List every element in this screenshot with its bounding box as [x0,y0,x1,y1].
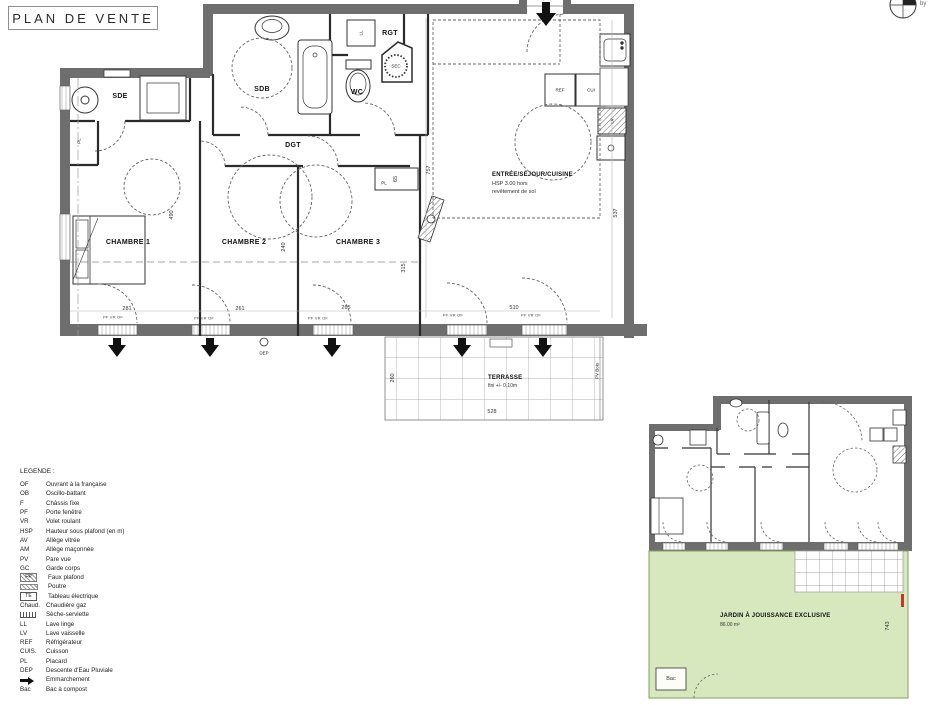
dim-sejour-width: 510 [509,305,518,311]
window-label-4: PF VR OF [443,314,463,319]
legend-key: LL [20,621,46,628]
legend-label: Lave vaisselle [46,630,85,637]
legend-label: Ouvrant à la française [46,481,107,488]
legend-item: AM Allège maçonnée [20,545,195,554]
legend: LEGENDE : OF Ouvrant à la française OB O… [20,468,195,694]
legend-item: OB Oscillo-battant [20,489,195,498]
legend-item: Emmarchement [20,675,195,684]
legend-key: PF [20,509,46,516]
room-label-sdb: SDB [254,86,270,94]
fixture-label-pl2: PL [76,138,81,144]
legend-label: Volet roulant [46,518,80,525]
legend-item: FP Faux plafond [20,573,195,582]
legend-item: HSP Hauteur sous plafond (en m) [20,526,195,535]
window-label-1: PF VR OF [103,316,123,321]
room-label-rgt: RGT [382,30,398,38]
dim-chambre1-width: 281 [122,306,131,312]
window-label-5: PF VR OF [521,314,541,319]
legend-key: TE [20,592,37,601]
legend-label: Faux plafond [48,574,84,581]
page-title: PLAN DE VENTE [12,11,154,26]
room-label-dgt: DGT [285,142,301,150]
legend-label: Châssis fixe [46,500,79,507]
dim-sejour-height: 537 [613,208,619,217]
room-label-chambre3: CHAMBRE 3 [336,239,380,247]
dep-label: DEP [259,350,268,355]
room-label-sde: SDE [112,93,127,101]
dim-chambre3-height: 315 [401,263,407,272]
fixture-label-ref: REF [556,87,565,92]
window-label-3: PF VR OF [308,317,328,322]
window-label-2: PF VR OF [194,317,214,322]
legend-key: HSP [20,528,46,535]
legend-item: PF Porte fenêtre [20,508,195,517]
sejour-note-1: HSP 3.00 hors [492,181,528,187]
legend-item: Chaud. Chaudière gaz [20,601,195,610]
legend-key [20,612,36,618]
compass-caption: by [920,1,926,8]
legend-key: CUIS. [20,648,46,655]
dim-chambre3-width: 265 [341,305,350,311]
legend-item: LV Lave vaisselle [20,629,195,638]
fixture-label-ll: LL [358,30,363,35]
legend-label: Allège vitrée [46,537,80,544]
room-label-chambre2: CHAMBRE 2 [222,239,266,247]
legend-label: Descente d'Eau Pluviale [46,667,113,674]
fixture-label-lv: LV [609,118,614,123]
legend-label: Garde corps [46,565,80,572]
sejour-note-2: revêtement de sol [492,189,536,195]
dim-terrasse-depth: 260 [390,373,396,382]
legend-key: OF [20,481,46,488]
legend-item: Bac Bac à compost [20,685,195,694]
fixture-label-sec: SEC [391,63,400,68]
bac-label: Bac [666,676,675,682]
dim-jardin-height: 743 [885,621,891,630]
legend-item: TE Tableau électrique [20,592,195,601]
legend-item: GC Garde corps [20,564,195,573]
dim-chambre2-height: 240 [281,242,287,251]
legend-key: AM [20,546,46,553]
dim-terrasse-width: 528 [487,409,496,415]
legend-item: LL Lave linge [20,619,195,628]
legend-label: Cuisson [46,648,68,655]
legend-label: Lave linge [46,621,74,628]
floor-plan-sheet: PLAN DE VENTE by SDE SDB WC RGT DGT CHAM… [0,0,940,705]
legend-key: PV [20,556,46,563]
jardin-title: JARDIN À JOUISSANCE EXCLUSIVE [720,613,831,620]
legend-key: Bac [20,686,46,693]
dim-total-height: 757 [426,165,432,174]
dim-chambre1-height: 490 [169,210,175,219]
legend-label: Tableau électrique [48,593,98,600]
fixture-label-cui: CUI [587,87,595,92]
legend-key: F [20,500,46,507]
legend-item: DEP Descente d'Eau Pluviale [20,666,195,675]
legend-item: VR Volet roulant [20,517,195,526]
legend-label: Hauteur sous plafond (en m) [46,528,124,535]
legend-label: Bac à compost [46,686,87,693]
legend-label: Placard [46,658,67,665]
title-box: PLAN DE VENTE [8,6,158,30]
legend-key: AV [20,537,46,544]
legend-item: Sèche-serviette [20,610,195,619]
legend-label: Allège maçonnée [46,546,94,553]
legend-key: VR [20,518,46,525]
legend-item: PL Placard [20,657,195,666]
legend-list: OF Ouvrant à la française OB Oscillo-bat… [20,480,195,694]
terrasse-note: fini +/- 0.10m [488,384,517,390]
legend-item: PV Pare vue [20,554,195,563]
dim-closet-depth: 65 [393,176,399,182]
legend-key: OB [20,490,46,497]
legend-label: Porte fenêtre [46,509,82,516]
fixture-label-pl: PL [381,180,387,185]
legend-key: GC [20,565,46,572]
jardin-area: 86.00 m² [720,623,740,629]
legend-title: LEGENDE : [20,468,195,475]
legend-label: Oscillo-battant [46,490,86,497]
dim-chambre2-width: 261 [235,306,244,312]
legend-key: FP [20,573,37,582]
legend-label: Réfrigérateur [46,639,82,646]
room-label-sejour: ENTRÉE/SÉJOUR/CUISINE [492,172,573,179]
legend-item: F Châssis fixe [20,499,195,508]
room-label-terrasse: TERRASSE [488,375,522,382]
legend-key: PL [20,658,46,665]
legend-item: REF Réfrigérateur [20,638,195,647]
room-label-wc: WC [351,89,363,97]
legend-label: Poutre [48,583,66,590]
legend-item: Poutre [20,582,195,591]
legend-label: Chaudière gaz [46,602,86,609]
legend-key [20,584,38,590]
legend-key: REF [20,639,46,646]
legend-item: OF Ouvrant à la française [20,480,195,489]
legend-key: LV [20,630,46,637]
legend-item: CUIS. Cuisson [20,647,195,656]
room-label-chambre1: CHAMBRE 1 [106,239,150,247]
legend-key: Chaud. [20,602,46,609]
legend-item: AV Allège vitrée [20,536,195,545]
legend-label: Pare vue [46,556,71,563]
legend-label: Sèche-serviette [46,611,89,618]
legend-key: DEP [20,667,46,674]
pv-bois-label: PV Bois [594,363,599,379]
legend-key [20,675,36,685]
legend-label: Emmarchement [46,676,90,683]
